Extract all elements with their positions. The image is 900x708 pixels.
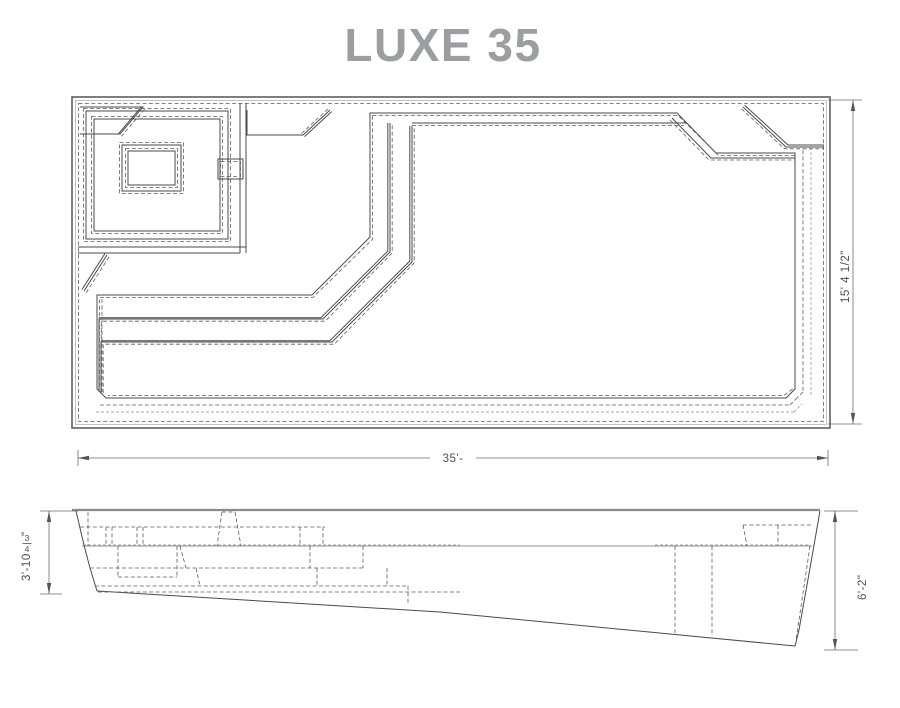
shallow-depth-unit: " bbox=[21, 531, 33, 536]
plan-length-label: 35'- bbox=[443, 453, 464, 465]
plan-width-label: 15' 4 1/2" bbox=[840, 250, 852, 303]
side-deep-end-hidden-lines bbox=[675, 525, 812, 640]
tanning-ledge bbox=[78, 103, 246, 253]
side-view bbox=[72, 510, 820, 646]
plan-width-dimension: 15' 4 1/2" bbox=[828, 100, 862, 424]
left-corner-step bbox=[82, 254, 109, 294]
floor-slope-line bbox=[97, 591, 795, 646]
wall-contour-1 bbox=[100, 150, 803, 405]
step-edge-lower bbox=[101, 126, 412, 393]
step-edge-middle bbox=[99, 123, 390, 391]
deep-end-wall bbox=[795, 511, 820, 646]
plan-length-dimension: 35'- bbox=[78, 450, 828, 466]
shallow-depth-dimension: 3'-10 3 4 " bbox=[21, 511, 78, 594]
center-feature-outer bbox=[122, 145, 181, 191]
pool-spec-sheet: LUXE 35 bbox=[0, 0, 900, 708]
page-title: LUXE 35 bbox=[344, 19, 541, 71]
wall-contour-2 bbox=[96, 147, 811, 412]
plan-view bbox=[72, 97, 830, 428]
corner-bench bbox=[670, 105, 824, 160]
svg-text:4: 4 bbox=[25, 544, 30, 554]
side-divider-wall-section bbox=[217, 512, 241, 546]
pool-coping-edge bbox=[76, 101, 827, 425]
shallow-end-wall bbox=[76, 511, 97, 591]
entry-steps bbox=[99, 123, 686, 393]
pool-inner-wall-hidden bbox=[79, 104, 824, 422]
pool-drawing: LUXE 35 bbox=[0, 0, 900, 708]
top-wall-bench bbox=[247, 109, 332, 137]
deep-depth-label: 6'-2" bbox=[857, 575, 869, 600]
ledge-step-2 bbox=[94, 119, 220, 231]
shallow-depth-label: 3'-10 bbox=[21, 553, 33, 581]
center-feature-inner bbox=[128, 151, 175, 185]
deep-depth-dimension: 6'-2" bbox=[824, 511, 869, 650]
pool-floor-outline bbox=[97, 113, 797, 398]
pool-outer-wall bbox=[72, 97, 830, 428]
ledge-step-1 bbox=[86, 111, 228, 239]
side-step-risers bbox=[88, 512, 408, 603]
